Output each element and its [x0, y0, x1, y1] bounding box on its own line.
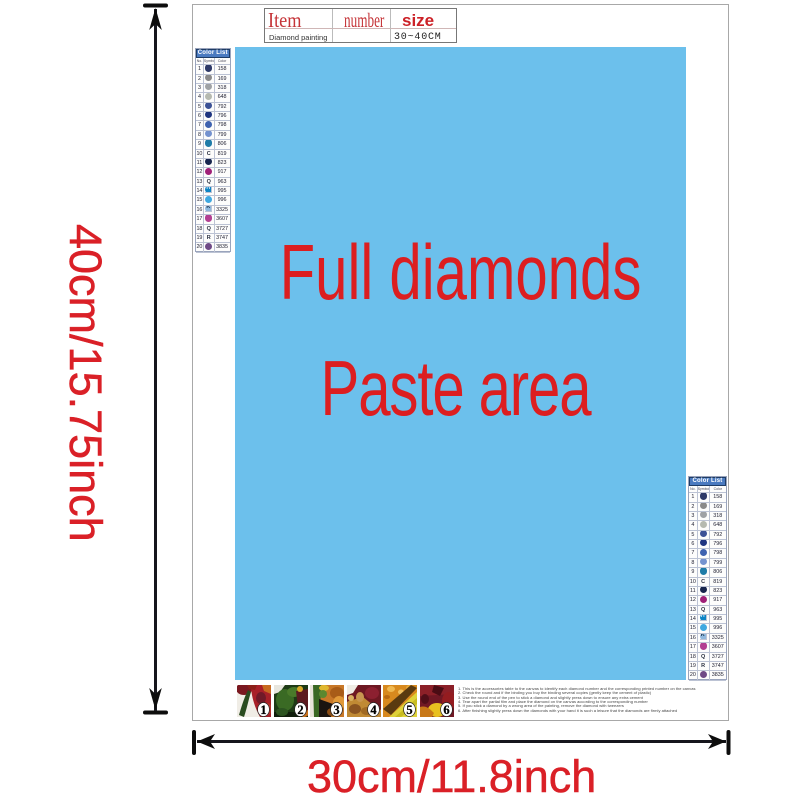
svg-text:5: 5 — [407, 703, 413, 717]
svg-text:4: 4 — [370, 703, 377, 717]
svg-text:3: 3 — [334, 703, 340, 717]
svg-text:1: 1 — [260, 703, 266, 717]
svg-text:6: 6 — [443, 703, 449, 717]
svg-text:2: 2 — [297, 703, 303, 717]
